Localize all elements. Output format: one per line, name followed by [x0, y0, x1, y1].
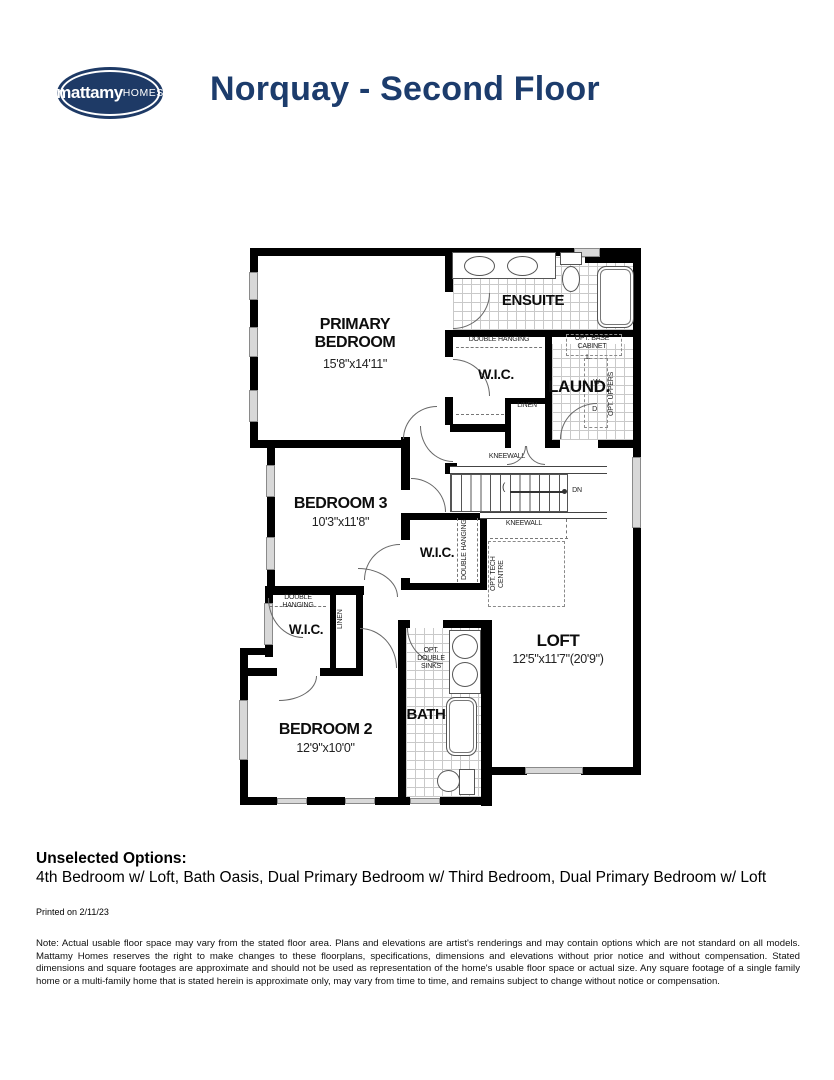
- room-label-bedroom3: BEDROOM 3: [283, 495, 398, 513]
- window: [410, 798, 440, 804]
- bath-toilet-tank: [459, 769, 475, 795]
- window: [239, 700, 248, 760]
- wall: [240, 760, 248, 805]
- wall: [545, 440, 560, 448]
- wall: [581, 767, 641, 775]
- wall: [267, 497, 275, 537]
- legal-note: Note: Actual usable floor space may vary…: [36, 938, 800, 989]
- ensuite-sink-icon: [507, 256, 538, 276]
- room-label-primary-wic: W.I.C.: [472, 367, 520, 383]
- wall: [240, 648, 248, 700]
- wall: [267, 448, 275, 465]
- room-dims-bedroom3: 10'3"x11'8": [283, 515, 398, 529]
- room-label-loft: LOFT: [498, 631, 618, 650]
- double-hanging-label: DOUBLE HANGING: [461, 519, 475, 581]
- ensuite-sink-icon: [464, 256, 495, 276]
- staircase: [450, 474, 568, 512]
- bath-sink-icon: [452, 634, 478, 659]
- opt-double-sinks-label: OPT. DOUBLE SINKS: [410, 647, 452, 671]
- wall: [401, 437, 410, 490]
- window: [277, 798, 307, 804]
- stairs-direction-line: [510, 491, 564, 493]
- wall: [633, 248, 641, 457]
- wall: [250, 357, 258, 390]
- opt-tech-centre-label: OPT. TECH CENTRE: [490, 545, 514, 603]
- page-title: Norquay - Second Floor: [210, 70, 630, 109]
- door-arc: [526, 446, 545, 465]
- window: [632, 457, 641, 528]
- bath-toilet-icon: [437, 770, 460, 792]
- wall: [598, 440, 641, 448]
- logo-text-homes: HOMES: [123, 87, 164, 99]
- mattamy-homes-logo: mattamyHOMES: [57, 67, 163, 119]
- wall: [265, 645, 273, 657]
- ensuite-toilet-icon: [562, 266, 580, 292]
- window: [525, 767, 583, 774]
- room-dims-primary-bedroom: 15'8"x14'11": [296, 357, 414, 371]
- room-label-bath: BATH: [404, 707, 448, 724]
- unselected-options-list: 4th Bedroom w/ Loft, Bath Oasis, Dual Pr…: [36, 869, 792, 887]
- stairwell-dashed-edge: [566, 519, 567, 539]
- room-label-primary-bedroom: PRIMARY BEDROOM: [296, 316, 414, 352]
- wall: [267, 570, 275, 586]
- window: [249, 272, 258, 300]
- linen-short-label: L: [584, 354, 592, 362]
- stairwell-dashed-edge: [490, 538, 568, 539]
- window: [249, 390, 258, 422]
- room-dims-loft: 12'5"x11'7"(20'9"): [493, 652, 623, 666]
- opt-base-cabinet-label: OPT. BASE CABINET: [564, 335, 620, 351]
- double-hanging-label: DOUBLE HANGING: [456, 336, 542, 344]
- wall: [440, 797, 482, 805]
- wall: [450, 424, 507, 432]
- wall: [320, 668, 363, 676]
- opt-uppers-label: OPT. UPPERS: [608, 362, 621, 426]
- logo-text-mattamy: mattamy: [56, 83, 122, 103]
- door-arc: [507, 446, 526, 465]
- door-arc: [420, 426, 453, 462]
- window: [266, 537, 275, 570]
- closet-rod-dashes: [456, 347, 542, 348]
- unselected-options-heading: Unselected Options:: [36, 850, 187, 868]
- wall: [250, 440, 403, 448]
- linen-label: LINEN: [506, 402, 548, 410]
- window: [345, 798, 375, 804]
- door-arc: [411, 478, 446, 512]
- linen-label: LINEN: [337, 597, 350, 641]
- logo-ring: mattamyHOMES: [60, 70, 160, 116]
- door-arc: [360, 628, 397, 668]
- wall: [445, 397, 453, 425]
- wall: [633, 528, 641, 775]
- floorplan-sheet: mattamyHOMES Norquay - Second Floor: [0, 0, 834, 1080]
- door-arc: [279, 676, 317, 701]
- closet-rod-dashes: [456, 414, 504, 415]
- closet-rod-dashes: [477, 518, 478, 582]
- bath-bathtub-icon: [446, 697, 477, 756]
- bath-sink-icon: [452, 662, 478, 687]
- room-label-ensuite: ENSUITE: [498, 293, 568, 310]
- dryer-label: D: [590, 406, 599, 414]
- printed-date: Printed on 2/11/23: [36, 907, 109, 917]
- washer-label: W: [592, 379, 601, 387]
- wall: [307, 797, 345, 805]
- stairs-dn-label: DN: [569, 487, 585, 495]
- window: [266, 465, 275, 497]
- kneewall-label: KNEEWALL: [484, 520, 564, 528]
- wall: [248, 668, 277, 676]
- double-hanging-label: DOUBLE HANGING: [268, 594, 328, 610]
- room-label-bedroom3-wic: W.I.C.: [412, 545, 462, 560]
- stairs-break-mark: (: [502, 482, 505, 493]
- room-dims-bedroom2: 12'9"x10'0": [268, 741, 383, 755]
- stairs-arrow-dot: [562, 489, 567, 494]
- wall: [330, 595, 336, 668]
- stairs-kneewall-top: [450, 466, 607, 474]
- wall: [401, 583, 487, 590]
- wall: [481, 620, 492, 806]
- wall: [250, 300, 258, 327]
- room-label-bedroom2: BEDROOM 2: [268, 721, 383, 739]
- room-label-bedroom2-wic: W.I.C.: [283, 622, 329, 637]
- ensuite-toilet-tank: [560, 252, 582, 265]
- stairs-kneewall-bottom: [480, 512, 607, 519]
- ensuite-bathtub-icon: [597, 266, 634, 328]
- wall: [250, 248, 258, 272]
- wall: [443, 620, 492, 628]
- window: [249, 327, 258, 357]
